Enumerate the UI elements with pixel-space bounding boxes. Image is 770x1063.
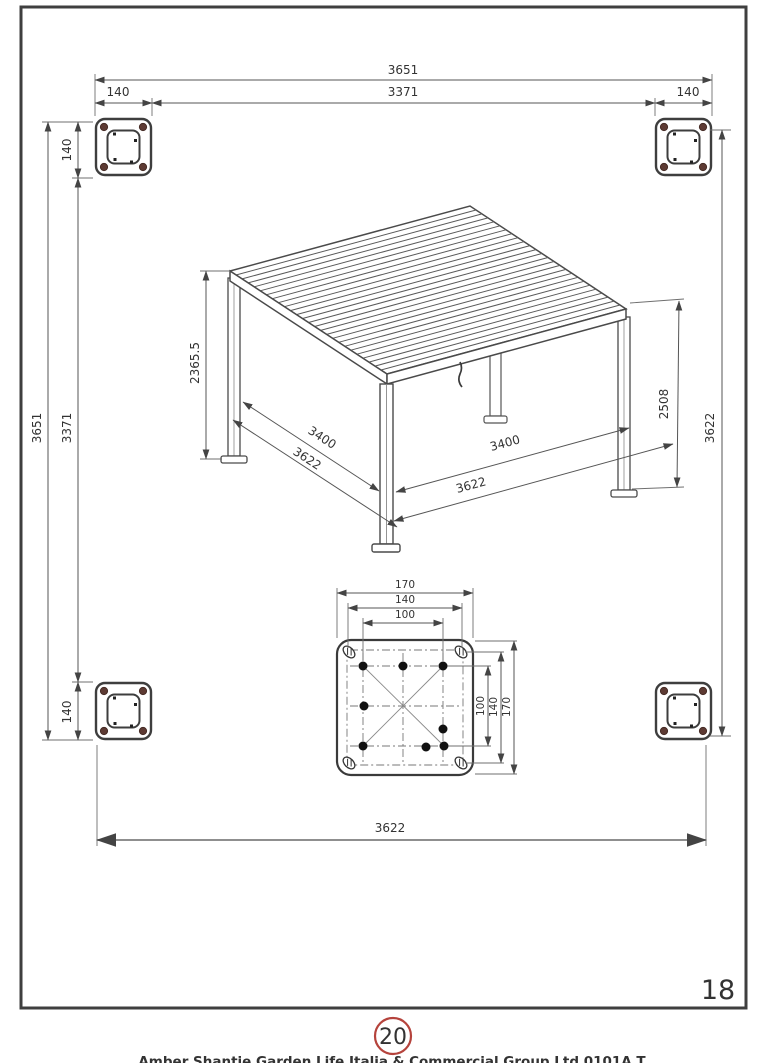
dim-top-overall: 3651 — [388, 63, 419, 77]
dim-left-overall: 3651 — [30, 413, 44, 444]
pergola-roof — [230, 206, 626, 384]
manual-page: 3651 140 3371 140 3651 140 3371 140 3622… — [0, 0, 770, 1063]
dim-plate-top-inner: 100 — [395, 609, 415, 621]
assembly-drawing: 3651 140 3371 140 3651 140 3371 140 3622… — [0, 0, 770, 1063]
post-section-top-left — [96, 119, 151, 175]
dim-left-post-bottom: 140 — [60, 701, 74, 724]
pergola-right-post — [611, 317, 637, 497]
post-section-top-right — [656, 119, 711, 175]
post-section-bottom-right — [656, 683, 711, 739]
dim-bottom-roof: 3622 — [375, 821, 406, 835]
dim-height-left: 2365.5 — [188, 342, 202, 384]
dim-right-roof: 3622 — [703, 413, 717, 444]
base-plate-detail: 170 140 100 100 140 170 — [337, 579, 517, 775]
step-badge-number: 20 — [379, 1025, 407, 1050]
pergola-left-post — [221, 278, 247, 463]
isometric-view: 2365.5 3400 3622 3400 3622 2508 — [188, 206, 684, 552]
dim-top-post-left: 140 — [107, 85, 130, 99]
dim-plate-right-outer: 170 — [501, 697, 513, 717]
dim-left-post-top: 140 — [60, 139, 74, 162]
dim-top-inner: 3371 — [388, 85, 419, 99]
dim-right-inner-span: 3400 — [488, 432, 521, 453]
dim-plate-right-mid: 140 — [488, 697, 500, 717]
clipped-caption: Amber Shantie Garden Life Italia & Comme… — [138, 1054, 646, 1063]
dim-plate-right-inner: 100 — [475, 696, 487, 716]
dim-left-inner: 3371 — [60, 413, 74, 444]
dim-left-inner-span: 3400 — [306, 423, 339, 451]
dim-right-roof-span: 3622 — [454, 474, 487, 495]
page-number: 18 — [701, 975, 735, 1006]
dim-top-post-right: 140 — [677, 85, 700, 99]
dim-height-right: 2508 — [657, 389, 671, 420]
dim-plate-top-outer: 170 — [395, 579, 415, 591]
dim-plate-top-mid: 140 — [395, 594, 415, 606]
post-section-bottom-left — [96, 683, 151, 739]
motor-cable — [459, 362, 462, 387]
